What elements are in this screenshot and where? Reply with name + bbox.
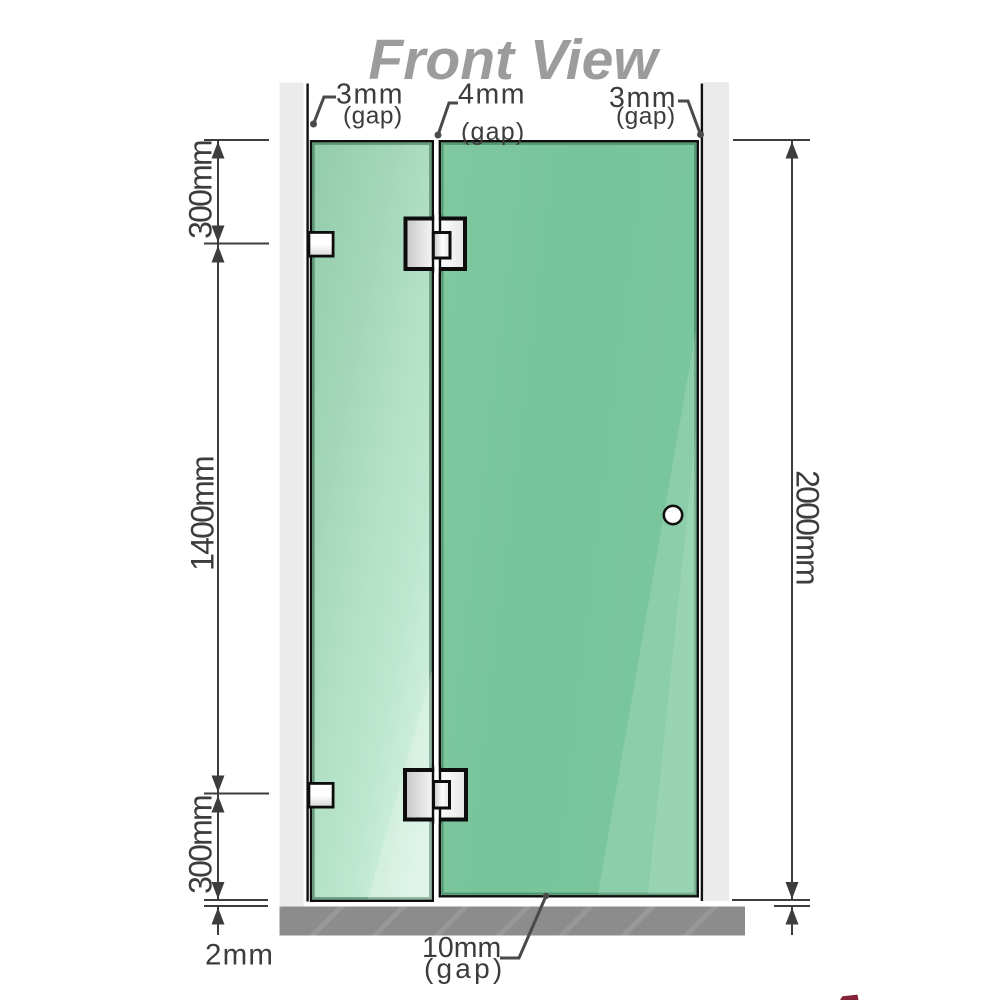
svg-text:2mm: 2mm <box>205 939 274 972</box>
svg-text:2000mm: 2000mm <box>790 470 826 584</box>
svg-text:(gap): (gap) <box>616 103 676 130</box>
svg-text:(gap): (gap) <box>461 118 525 146</box>
svg-text:4mm: 4mm <box>458 79 526 111</box>
svg-text:300mm: 300mm <box>183 796 219 894</box>
svg-text:1400mm: 1400mm <box>185 457 221 571</box>
svg-text:(gap): (gap) <box>424 953 505 984</box>
svg-text:(gap): (gap) <box>343 103 403 130</box>
svg-text:300mm: 300mm <box>183 141 219 239</box>
